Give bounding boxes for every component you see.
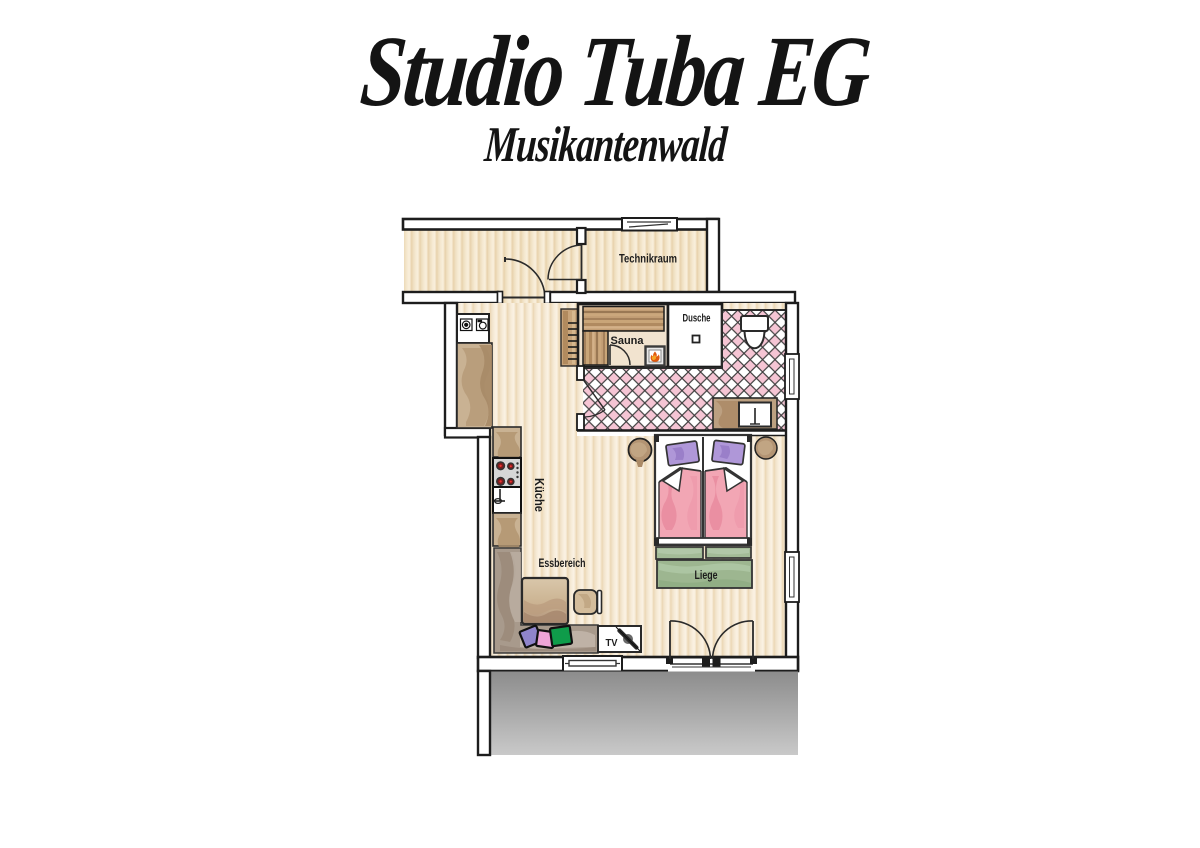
svg-text:Liege: Liege <box>695 570 718 582</box>
svg-text:Dusche: Dusche <box>683 313 711 325</box>
svg-text:Essbereich: Essbereich <box>539 558 586 570</box>
svg-text:Küche: Küche <box>532 478 546 512</box>
svg-text:Sauna: Sauna <box>611 335 645 347</box>
svg-text:Technikraum: Technikraum <box>619 252 677 266</box>
svg-text:TV: TV <box>606 637 618 649</box>
